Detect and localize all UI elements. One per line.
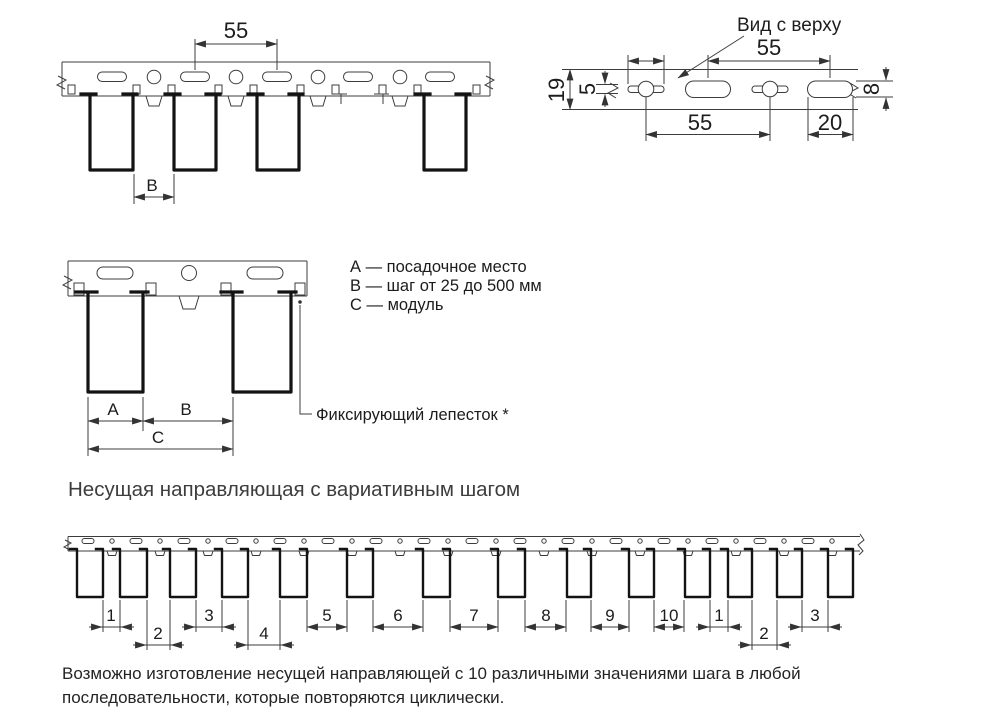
step-label: 10 (660, 606, 679, 625)
step-label: 5 (322, 606, 331, 625)
panel (821, 549, 853, 597)
top-view-title: Вид с верху (737, 15, 842, 36)
step-label: 1 (714, 606, 723, 625)
panel (113, 549, 147, 597)
panel (340, 549, 373, 597)
panel (70, 549, 103, 597)
bottom-dim-55-label: 55 (688, 110, 712, 135)
step-extension-lines-lower (147, 600, 777, 650)
step-label: 8 (541, 606, 550, 625)
step-label: 4 (259, 624, 268, 643)
bottom-dim-20-label: 20 (818, 110, 842, 135)
step-label: 2 (759, 624, 768, 643)
module-view: А В С А — посадочное место В — шаг от 25… (63, 258, 542, 456)
bottom-dim-20: 20 (808, 97, 853, 141)
top-dim-19-label: 19 (544, 78, 569, 102)
front-rail-holes (98, 70, 455, 84)
footer-line-1: Возможно изготовление несущей направляющ… (62, 664, 801, 683)
module-panels (76, 292, 296, 392)
top-view: Вид с верху 19 5 (544, 15, 893, 141)
fixing-tab-point (298, 300, 302, 304)
fixing-tab-callout: Фиксирующий лепесток * (300, 305, 509, 424)
front-rail-profile (57, 62, 494, 106)
module-legend: А — посадочное место В — шаг от 25 до 50… (350, 258, 542, 314)
panel (416, 549, 450, 597)
front-panels (81, 94, 470, 170)
front-dim-b: В (134, 174, 174, 204)
module-dim-c-label: С (152, 428, 164, 447)
module-dim-a-label: А (107, 400, 119, 419)
section-title: Несущая направляющая с вариативным шагом (68, 478, 520, 501)
top-dim-19: 19 (544, 70, 570, 110)
panel (165, 94, 220, 170)
fixing-tab-label: Фиксирующий лепесток * (316, 406, 509, 424)
panel (81, 94, 137, 170)
top-dim-55: 55 (708, 35, 830, 78)
step-label: 2 (153, 624, 162, 643)
technical-drawing-page: 55 В Вид с верху 19 (0, 0, 1000, 722)
step-label: 1 (106, 606, 115, 625)
module-dims: А В С (88, 397, 233, 456)
panel (415, 94, 470, 170)
variable-view: 1 2 3 4 5 6 7 8 9 10 (64, 534, 864, 650)
footer-note: Возможно изготовление несущей направляющ… (62, 664, 801, 707)
technical-drawing: 55 В Вид с верху 19 (0, 0, 1000, 722)
title-leader-arrow (678, 36, 744, 78)
panel (248, 94, 303, 170)
step-dims: 1 2 3 4 5 6 7 8 9 10 (89, 606, 842, 645)
panel (560, 549, 591, 597)
step-label: 3 (204, 606, 213, 625)
panel (273, 549, 307, 597)
break-mark (63, 276, 72, 289)
legend-line-c: С — модуль (350, 296, 443, 314)
front-dim-b-label: В (146, 176, 157, 195)
step-label: 3 (810, 606, 819, 625)
top-dim-55-label: 55 (757, 35, 781, 60)
top-view-strip (562, 70, 858, 110)
front-dim-55-label: 55 (224, 18, 248, 43)
module-rail-profile (63, 261, 307, 309)
legend-line-a: А — посадочное место (350, 258, 527, 276)
panel (221, 292, 296, 392)
panel (163, 549, 196, 597)
step-label: 7 (469, 606, 478, 625)
panel (491, 549, 525, 597)
variable-rail-holes (82, 539, 834, 544)
legend-line-b: В — шаг от 25 до 500 мм (350, 277, 542, 295)
step-label: 9 (605, 606, 614, 625)
top-dim-5-label: 5 (575, 83, 600, 95)
panel (721, 549, 752, 597)
variable-panels (70, 549, 853, 597)
module-dim-b-label: В (180, 400, 191, 419)
panel (215, 549, 248, 597)
step-label: 6 (393, 606, 402, 625)
top-dim-8: 8 (856, 67, 893, 111)
top-dim-5: 5 (575, 71, 618, 107)
top-dim-8-label: 8 (859, 83, 884, 95)
panel (76, 292, 148, 392)
variable-rail-profile (64, 534, 864, 556)
bottom-dim-55: 55 (646, 97, 770, 141)
panel (770, 549, 802, 597)
footer-line-2: последовательности, которые повторяются … (62, 688, 504, 707)
front-view: 55 В (57, 18, 494, 204)
panel (678, 549, 710, 597)
panel (622, 549, 654, 597)
